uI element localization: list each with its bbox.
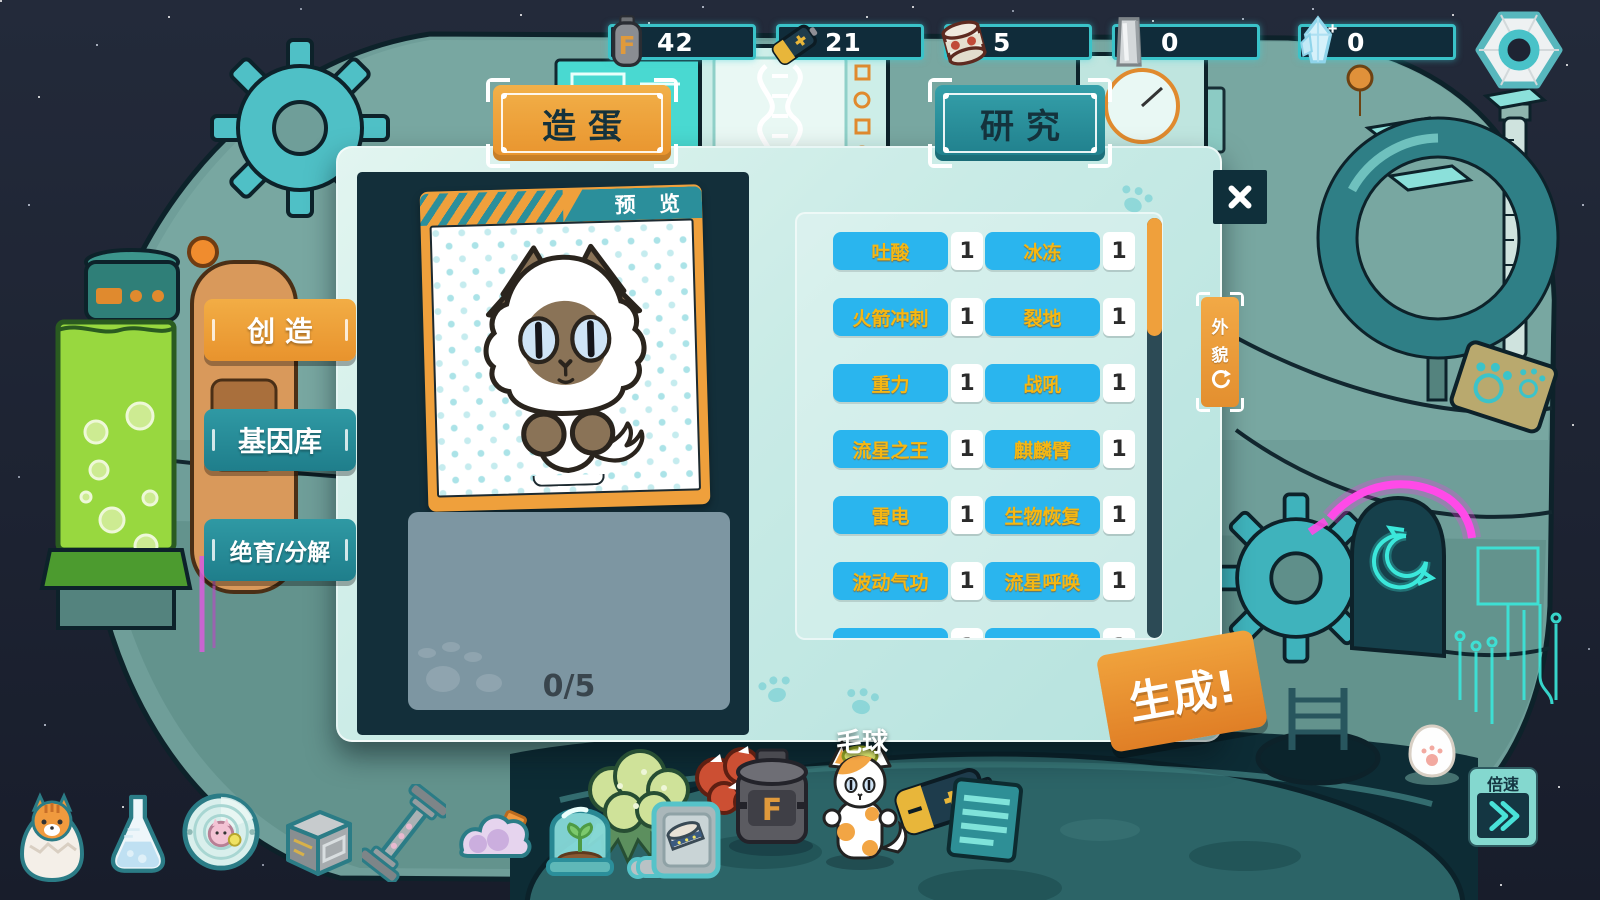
sidebar-gene-bank-label: 基因库 [238, 420, 322, 460]
skill-item[interactable]: 波动气功1 [833, 562, 983, 600]
dock-egg-hatch-icon[interactable] [10, 792, 94, 884]
skill-item[interactable]: 流星之王1 [833, 430, 983, 468]
skill-count: 1 [951, 628, 983, 640]
tab-research[interactable]: 研究 [928, 78, 1112, 168]
skill-count: 1 [951, 232, 983, 270]
tab-egg-create[interactable]: 造蛋 [486, 78, 678, 168]
skill-label: 冰冻 [985, 232, 1100, 270]
skill-item[interactable]: 生物恢复1 [985, 496, 1135, 534]
sidebar-item-neuter-decompose[interactable]: 绝育/分解 [204, 519, 356, 581]
skill-label: 吐酸 [833, 232, 948, 270]
fuel-letter: F [619, 31, 636, 60]
skill-count: 1 [951, 496, 983, 534]
skill-label: 裂地 [985, 298, 1100, 336]
skill-scrollbar-thumb[interactable] [1147, 218, 1162, 336]
skill-item[interactable]: 火箭冲刺1 [833, 298, 983, 336]
skill-count: 1 [951, 298, 983, 336]
dock-flask-icon[interactable] [102, 786, 174, 880]
gene-slot-box: 0/5 [408, 512, 730, 710]
skill-count: 1 [1103, 232, 1135, 270]
refresh-icon [1208, 369, 1232, 391]
skill-label: 流星之王 [833, 430, 948, 468]
speed-toggle-button[interactable]: 倍速 [1468, 767, 1538, 847]
sidebar-create-label: 创 造 [247, 310, 313, 350]
speed-label: 倍速 [1470, 771, 1536, 795]
dock-metal-cube-icon[interactable] [274, 800, 362, 880]
skill-count: 1 [951, 562, 983, 600]
appearance-refresh-tab[interactable]: 外 貌 [1196, 292, 1244, 412]
skill-count: 1 [1103, 298, 1135, 336]
skill-item[interactable]: 雷电1 [833, 496, 983, 534]
skill-item[interactable]: 麒麟臂1 [985, 430, 1135, 468]
skill-item[interactable]: 流星呼唤1 [985, 562, 1135, 600]
dock-cloud-icon[interactable] [448, 788, 536, 872]
metal-ingot-icon [1107, 14, 1155, 72]
resource-battery: 21 [776, 24, 924, 60]
skill-label: 重力 [833, 364, 948, 402]
slot-counter: 0/5 [408, 669, 730, 704]
sidebar-item-gene-bank[interactable]: 基因库 [204, 409, 356, 471]
skill-item[interactable]: 重力1 [833, 364, 983, 402]
pet-cat-sprite[interactable] [812, 740, 908, 870]
dock-radar-icon[interactable] [180, 790, 262, 874]
skill-item[interactable]: 冰冻1 [985, 232, 1135, 270]
preview-cat-image [447, 229, 684, 487]
resource-canned-food: 5 [944, 24, 1092, 60]
resource-bar: F 42 21 [608, 24, 1456, 60]
skill-label: 波动气功 [833, 562, 948, 600]
resource-value: 0 [1347, 28, 1365, 57]
skill-item[interactable]: 法师麒麟臂1 [985, 628, 1135, 640]
dock-food-machine-icon[interactable] [624, 796, 724, 882]
dock-dumbbell-icon[interactable] [362, 784, 446, 882]
tab-research-label: 研究 [968, 99, 1072, 148]
skill-count: 1 [1103, 364, 1135, 402]
skill-item[interactable]: 战吼1 [985, 364, 1135, 402]
preview-title: 预 览 [563, 186, 702, 222]
tab-egg-label: 造蛋 [530, 99, 634, 148]
pet-name-label: 毛球 [802, 722, 922, 759]
skill-label: 战吼 [985, 364, 1100, 402]
skill-list-panel: 吐酸1 冰冻1 火箭冲刺1 裂地1 重力1 战吼1 流星之王1 麒麟臂1 雷电1… [795, 212, 1163, 640]
preview-photo [430, 218, 701, 497]
fast-forward-icon [1477, 793, 1529, 838]
skill-count: 1 [1103, 562, 1135, 600]
fuel-can-icon: F [603, 14, 651, 72]
skill-label: 雷电 [833, 496, 948, 534]
close-icon[interactable] [1213, 170, 1267, 224]
skill-count: 1 [951, 430, 983, 468]
skill-label: 生物恢复 [985, 496, 1100, 534]
skill-item[interactable]: 吐酸1 [833, 232, 983, 270]
resource-value: 5 [993, 28, 1011, 57]
sidebar-item-create[interactable]: 创 造 [204, 299, 356, 361]
resource-value: 42 [657, 28, 694, 57]
skill-count: 1 [1103, 430, 1135, 468]
skill-grid: 吐酸1 冰冻1 火箭冲刺1 裂地1 重力1 战吼1 流星之王1 麒麟臂1 雷电1… [833, 232, 1135, 640]
skill-scrollbar-track[interactable] [1147, 218, 1162, 638]
canned-food-icon [939, 14, 987, 72]
skill-count: 1 [1103, 496, 1135, 534]
settings-nut-icon[interactable] [1472, 8, 1566, 92]
resource-value: 21 [825, 28, 862, 57]
resource-metal: 0 [1112, 24, 1260, 60]
resource-fuel: F 42 [608, 24, 756, 60]
resource-value: 0 [1161, 28, 1179, 57]
skill-label: 法师麒麟臂 [985, 628, 1100, 640]
hazard-stripes-decor [420, 190, 564, 226]
green-tube [42, 250, 190, 628]
skill-label: 火箭冲刺 [833, 298, 948, 336]
dock-plant-dome-icon[interactable] [540, 786, 620, 884]
generate-label: 生成! [1123, 650, 1241, 732]
appearance-char-2: 貌 [1212, 341, 1229, 366]
skill-item[interactable]: 裂地1 [985, 298, 1135, 336]
game-screen: F 42 21 [0, 0, 1600, 900]
skill-label: 流星呼唤 [985, 562, 1100, 600]
sidebar-neuter-label: 绝育/分解 [230, 533, 330, 567]
appearance-char-1: 外 [1212, 313, 1229, 338]
skill-item[interactable]: 幽灵复活1 [833, 628, 983, 640]
crystal-icon [1293, 14, 1341, 72]
skill-count: 1 [951, 364, 983, 402]
preview-card: 预 览 [420, 184, 711, 512]
battery-icon [771, 14, 819, 72]
card-notch-decor [533, 474, 605, 487]
skill-count: 1 [1103, 628, 1135, 640]
skill-label: 幽灵复活 [833, 628, 948, 640]
resource-crystal: 0 [1298, 24, 1456, 60]
skill-label: 麒麟臂 [985, 430, 1100, 468]
